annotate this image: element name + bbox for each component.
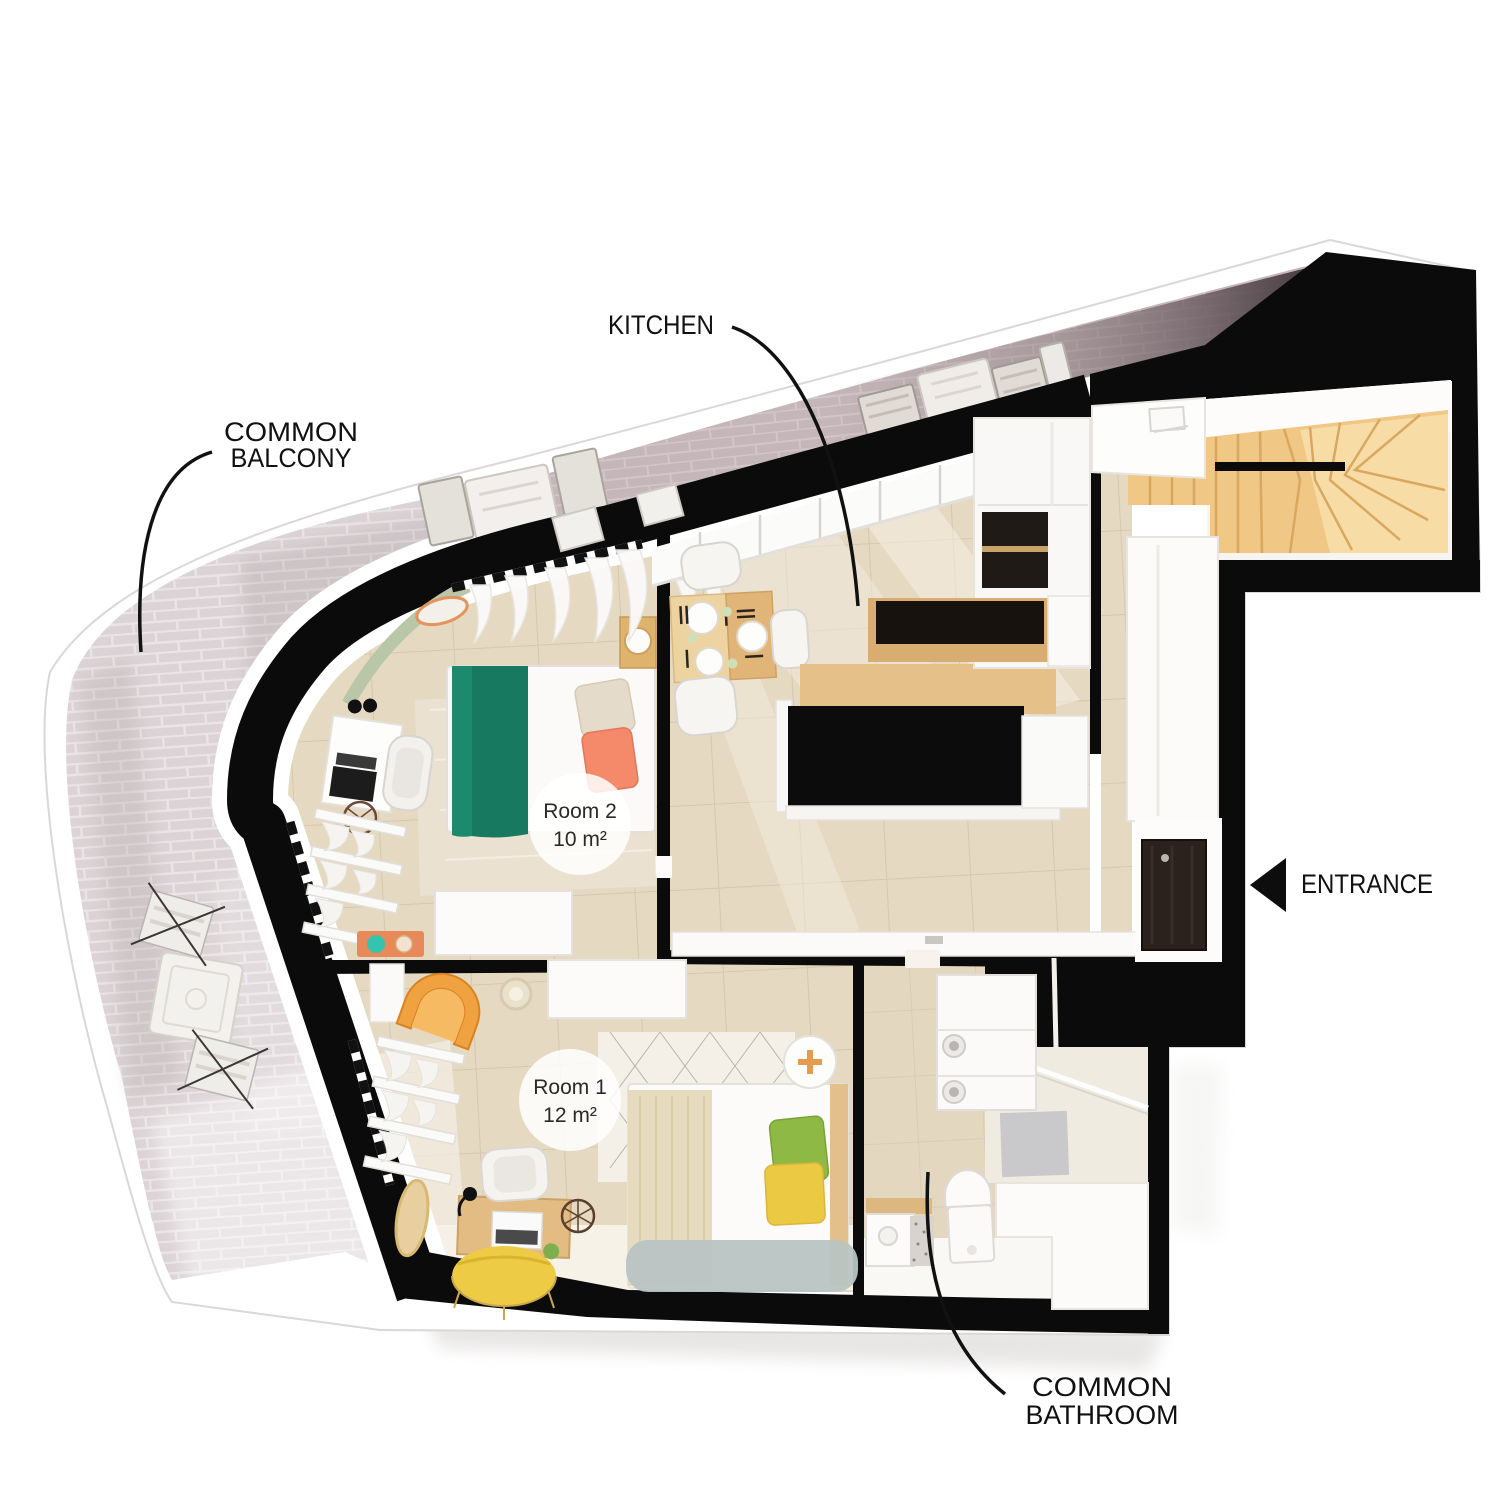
svg-text:BATHROOM: BATHROOM [1026, 1400, 1179, 1430]
svg-text:ENTRANCE: ENTRANCE [1301, 869, 1433, 899]
svg-text:BALCONY: BALCONY [231, 443, 352, 473]
svg-text:Room 1: Room 1 [533, 1076, 607, 1099]
svg-text:KITCHEN: KITCHEN [608, 310, 714, 340]
svg-text:10 m²: 10 m² [553, 828, 607, 851]
svg-text:12 m²: 12 m² [543, 1104, 597, 1127]
svg-text:Room 2: Room 2 [543, 800, 617, 823]
svg-text:COMMON: COMMON [1032, 1372, 1172, 1402]
